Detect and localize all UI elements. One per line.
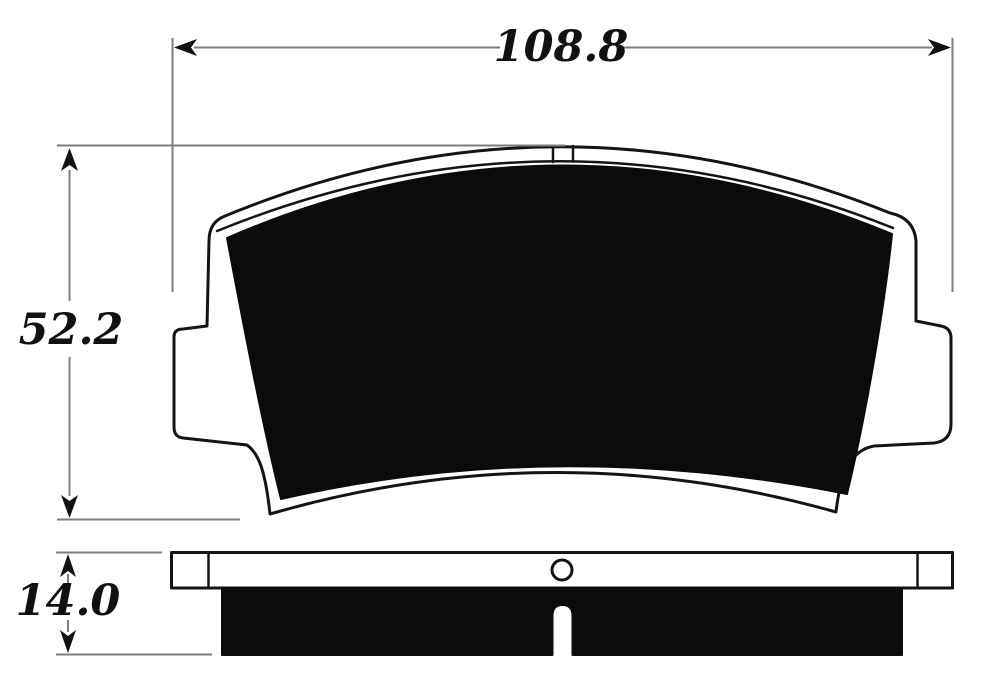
arrowhead-down-icon [60, 630, 76, 653]
thickness-dimension-label: 14.0 [16, 576, 121, 626]
width-dimension-label: 108.8 [494, 22, 629, 72]
friction-material-edge [222, 588, 902, 655]
center-hole [552, 560, 572, 580]
edge-view [172, 553, 953, 656]
arrowhead-up-icon [61, 148, 78, 171]
drawing-canvas: 108.8 52.2 14.0 [0, 0, 991, 682]
arrowhead-down-icon [61, 495, 78, 518]
brake-pad-technical-drawing: 108.8 52.2 14.0 [0, 0, 991, 682]
height-dimension-label: 52.2 [19, 305, 124, 355]
front-view [174, 146, 951, 514]
friction-material-face [227, 165, 892, 499]
arrowhead-up-icon [60, 554, 76, 577]
arrowhead-left-icon [174, 39, 197, 56]
